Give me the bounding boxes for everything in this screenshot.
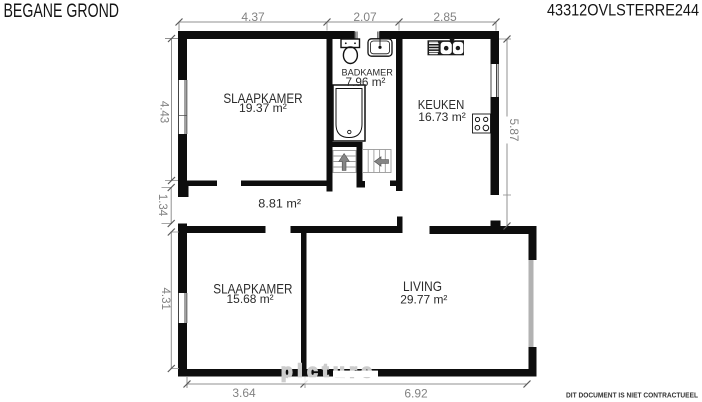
svg-text:15.68 m²: 15.68 m² xyxy=(227,292,274,306)
svg-text:4.31: 4.31 xyxy=(159,288,171,310)
svg-text:3.64: 3.64 xyxy=(232,386,256,400)
svg-text:1.34: 1.34 xyxy=(156,194,168,217)
svg-text:7.96 m²: 7.96 m² xyxy=(346,75,386,89)
svg-text:29.77 m²: 29.77 m² xyxy=(400,293,447,307)
svg-text:16.73 m²: 16.73 m² xyxy=(418,110,466,124)
svg-text:DIT DOCUMENT IS NIET CONTRACTU: DIT DOCUMENT IS NIET CONTRACTUEEL xyxy=(566,390,698,399)
svg-text:43312OVLSTERRE244: 43312OVLSTERRE244 xyxy=(547,1,699,20)
svg-text:19.37 m²: 19.37 m² xyxy=(239,101,287,115)
svg-text:2.07: 2.07 xyxy=(353,10,377,24)
svg-text:4.37: 4.37 xyxy=(241,10,265,24)
svg-text:BEGANE GROND: BEGANE GROND xyxy=(4,1,120,22)
svg-text:6.92: 6.92 xyxy=(404,387,428,401)
svg-text:8.81 m²: 8.81 m² xyxy=(258,197,301,211)
svg-text:2.85: 2.85 xyxy=(433,10,457,24)
svg-text:5.87: 5.87 xyxy=(507,119,521,142)
svg-text:4.43: 4.43 xyxy=(158,101,170,123)
